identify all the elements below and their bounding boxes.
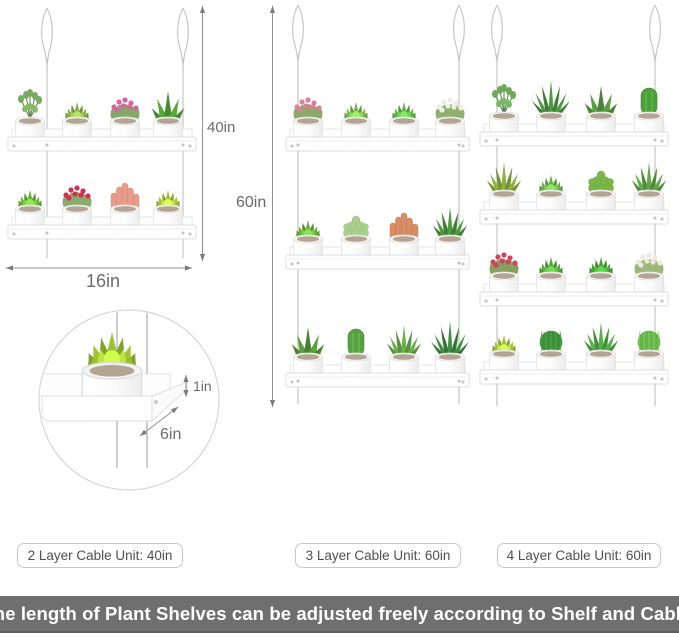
potted-plant	[431, 321, 469, 381]
cable-loop	[178, 8, 189, 64]
cable-loop	[650, 5, 661, 61]
unit-label-4-layer: 4 Layer Cable Unit: 60in	[497, 543, 661, 568]
potted-plant	[532, 80, 570, 140]
dimension-arrow-height-middle	[270, 6, 275, 407]
bottom-banner: The length of Plant Shelves can be adjus…	[0, 596, 679, 633]
shelf-front-lip	[42, 396, 152, 421]
dim-label-6in: 6in	[160, 427, 181, 443]
shelf	[286, 137, 469, 151]
dimension-arrow-width-left	[6, 265, 192, 270]
shelf	[286, 373, 469, 387]
dim-label-40in: 40in	[207, 120, 235, 135]
shelf-detail-callout	[39, 310, 219, 490]
cable-loop	[454, 5, 465, 61]
dim-label-60in: 60in	[236, 195, 266, 211]
product-infographic: 40in 16in 60in 1in 6in 2 Layer Cable Uni…	[0, 0, 679, 638]
unit-3-layer	[286, 5, 469, 404]
shelf	[480, 210, 668, 224]
unit-4-layer	[480, 5, 668, 406]
cable-loop	[42, 8, 53, 64]
shelf	[8, 225, 196, 239]
shelf	[8, 137, 196, 151]
cable-loop	[492, 5, 503, 61]
shelf	[286, 255, 469, 269]
banner-text: The length of Plant Shelves can be adjus…	[0, 603, 679, 625]
shelf	[480, 292, 668, 306]
dim-label-16in: 16in	[86, 272, 120, 290]
illustration-canvas	[0, 0, 679, 596]
cable-loop	[293, 5, 304, 61]
unit-label-2-layer: 2 Layer Cable Unit: 40in	[17, 543, 183, 568]
unit-label-3-layer: 3 Layer Cable Unit: 60in	[295, 543, 461, 568]
unit-2-layer	[8, 8, 196, 258]
dim-label-1in: 1in	[193, 379, 212, 393]
dimension-arrow-height-left	[200, 6, 205, 261]
shelf	[480, 132, 668, 146]
shelf	[480, 370, 668, 384]
